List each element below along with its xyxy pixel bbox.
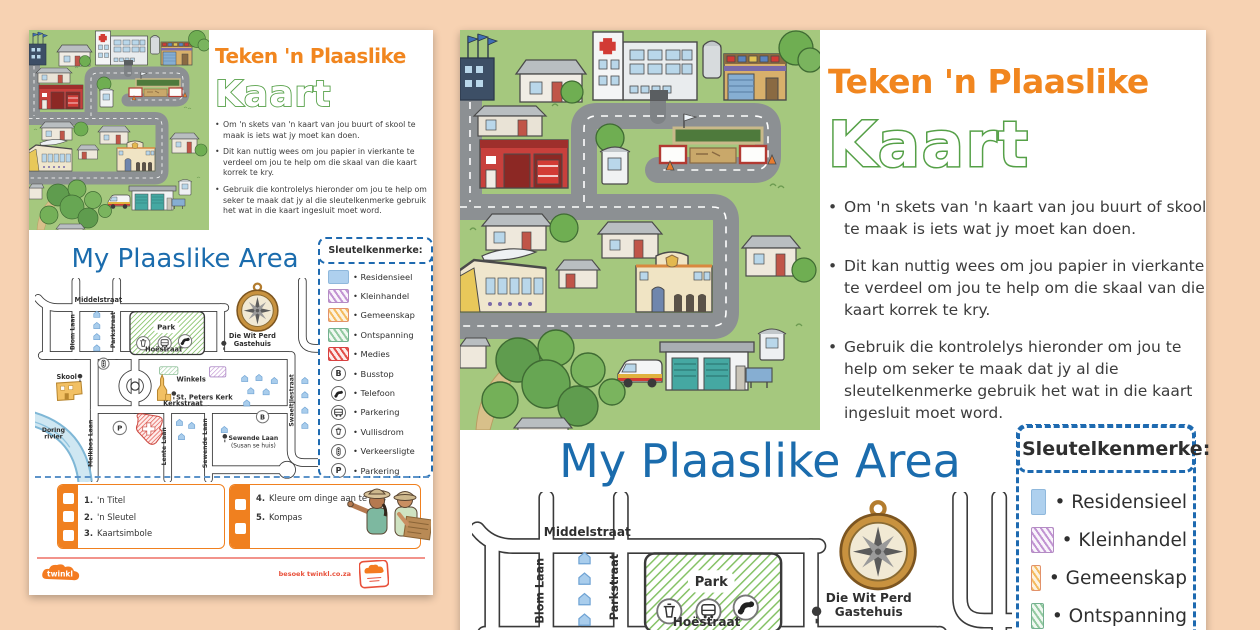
bullet-marker: • (828, 255, 844, 321)
town-map-illustration-small (29, 30, 209, 230)
legend-row: B• Busstop (328, 364, 427, 383)
checkbox (235, 499, 246, 510)
residential-swatch (1031, 489, 1046, 515)
community-swatch (1031, 565, 1041, 591)
legend-row: • Parkering (328, 403, 427, 422)
children-illustration (347, 480, 431, 550)
sketch-map-small (35, 278, 331, 482)
checklist-card-left: 1.'n Titel 2.'n Sleutel 3.Kaartsimbole (57, 484, 225, 549)
bullet-item: •Gebruik die kontrolelys hieronder om jo… (828, 336, 1210, 424)
trash-bin-icon (331, 424, 346, 439)
legend-row: • Ontspanning (328, 325, 427, 344)
legend-row: • Gemeenskap (1031, 559, 1187, 597)
checkbox (63, 493, 74, 504)
bullet-marker: • (828, 196, 844, 240)
recreation-swatch (1031, 603, 1044, 629)
bus-icon (331, 405, 346, 420)
footer-divider (37, 557, 425, 559)
worksheet-page-zoomed: Teken 'n Plaaslike Kaart •Om 'n skets va… (460, 30, 1206, 630)
checklist-item: 3.Kaartsimbole (84, 528, 218, 538)
bullet-item: •Om 'n skets van 'n kaart van jou buurt … (828, 196, 1210, 240)
legend-panel: Sleutelkenmerke: • Residensieel • Kleinh… (318, 237, 433, 478)
svg-text:twinkl: twinkl (47, 570, 73, 579)
svg-text:Kaart: Kaart (215, 74, 331, 115)
legend-row: • Residensieel (1031, 483, 1187, 521)
legend-row: • Vullisdrom (328, 422, 427, 441)
medical-swatch (328, 347, 349, 361)
bullet-item: •Dit kan nuttig wees om jou papier in vi… (828, 255, 1210, 321)
intro-bullets: •Om 'n skets van 'n kaart van jou buurt … (828, 196, 1210, 439)
sketch-map-zoomed (472, 492, 1012, 630)
worksheet-title-line2: Kaart (213, 68, 383, 116)
worksheet-title-line2: Kaart (824, 100, 1124, 184)
map-title: My Plaaslike Area (500, 434, 1020, 488)
checklist-item: 1.'n Titel (84, 495, 218, 505)
community-swatch (328, 308, 349, 322)
checkbox-column (58, 485, 78, 548)
checkbox-column (230, 485, 250, 548)
bullet-marker: • (215, 147, 223, 179)
bullet-item: •Gebruik die kontrolelys hieronder om jo… (215, 185, 429, 217)
checkbox (63, 530, 74, 541)
twinkl-quality-stamp (359, 560, 389, 590)
legend-title: Sleutelkenmerke: (318, 237, 433, 264)
town-map-illustration-large (460, 30, 820, 430)
checkbox (235, 523, 246, 534)
legend-row: • Kleinhandel (328, 286, 427, 305)
checklist-item: 2.'n Sleutel (84, 512, 218, 522)
resource-preview-canvas: Teken 'n Plaaslike Kaart •Om 'n skets va… (0, 0, 1260, 630)
legend-row: • Residensieel (328, 267, 427, 286)
legend-row: • Gemeenskap (328, 306, 427, 325)
legend-row: • Medies (328, 345, 427, 364)
bullet-marker: • (215, 185, 223, 217)
dashed-separator (35, 476, 429, 478)
intro-bullets: •Om 'n skets van 'n kaart van jou buurt … (215, 120, 429, 223)
recreation-swatch (328, 328, 349, 342)
visit-url: besoek twinkl.co.za (279, 570, 351, 578)
bus-stop-icon: B (331, 366, 346, 381)
worksheet-title-line1: Teken 'n Plaaslike (215, 44, 406, 68)
legend-row: • Verkeersligte (328, 442, 427, 461)
bullet-item: •Dit kan nuttig wees om jou papier in vi… (215, 147, 429, 179)
legend-panel: Sleutelkenmerke: • Residensieel • Kleinh… (1016, 424, 1196, 630)
telephone-icon (331, 386, 346, 401)
map-title: My Plaaslike Area (45, 244, 325, 274)
bullet-item: •Om 'n skets van 'n kaart van jou buurt … (215, 120, 429, 141)
legend-title: Sleutelkenmerke: (1017, 425, 1195, 473)
checkbox (63, 511, 74, 522)
svg-text:Kaart: Kaart (828, 108, 1030, 181)
legend-row: • Kleinhandel (1031, 521, 1187, 559)
legend-row: • Telefoon (328, 383, 427, 402)
bullet-marker: • (215, 120, 223, 141)
legend-row: • Ontspanning (1031, 597, 1187, 630)
bullet-marker: • (828, 336, 844, 424)
retail-swatch (328, 289, 349, 303)
twinkl-logo: twinkl (41, 563, 81, 585)
worksheet-page-small: Teken 'n Plaaslike Kaart •Om 'n skets va… (29, 30, 433, 595)
residential-swatch (328, 270, 349, 284)
traffic-light-icon (331, 444, 346, 459)
worksheet-title-line1: Teken 'n Plaaslike (828, 62, 1149, 101)
retail-swatch (1031, 527, 1054, 553)
